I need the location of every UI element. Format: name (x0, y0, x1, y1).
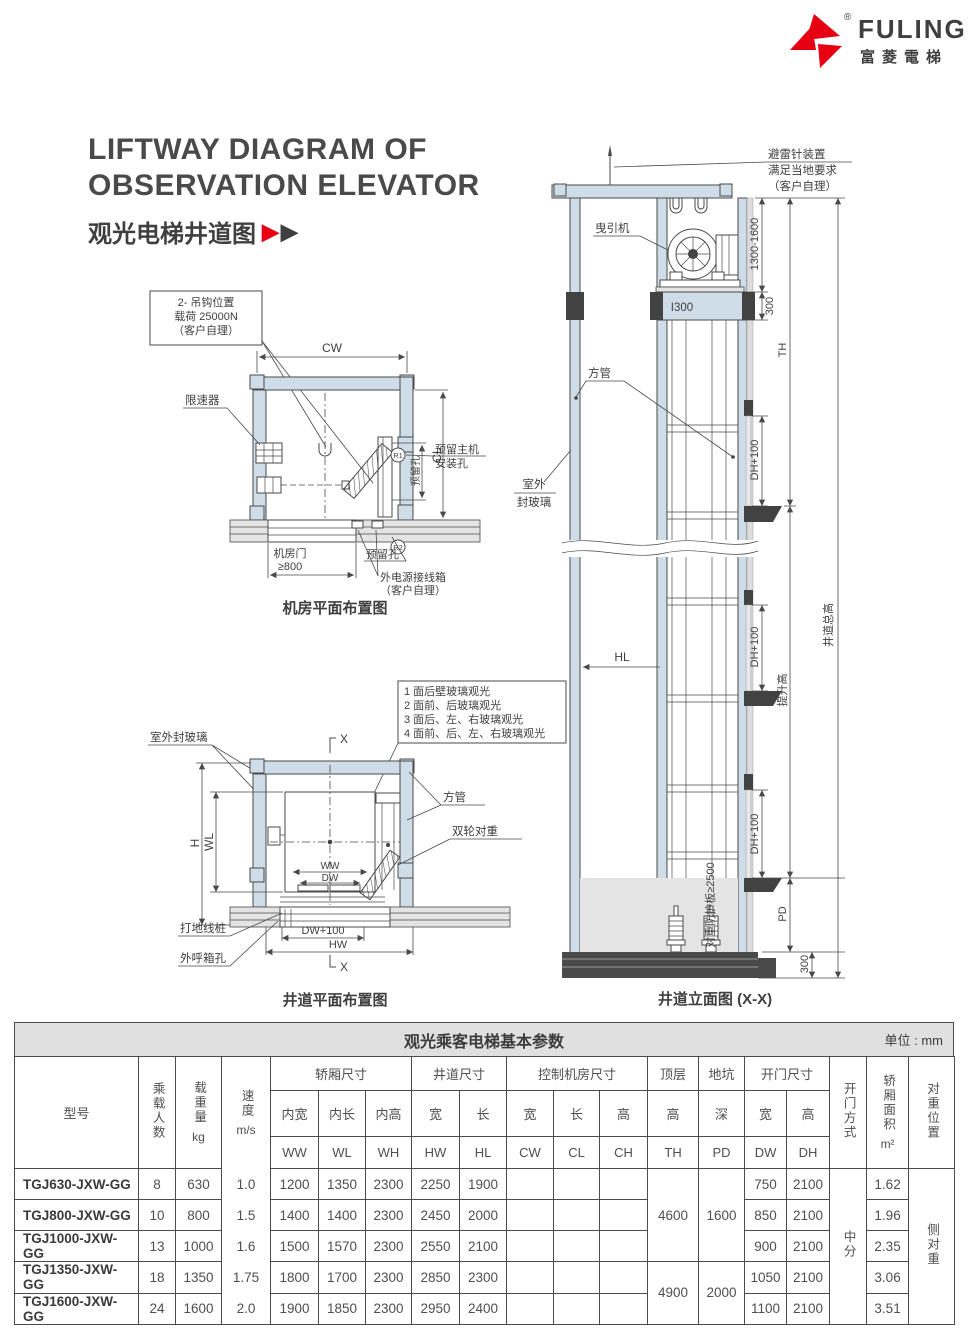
table-title-bar: 观光乘客电梯基本参数 单位 : mm (14, 1022, 954, 1056)
dim-dh-label-2: DH+100 (749, 627, 761, 668)
cell-persons: 13 (139, 1231, 176, 1262)
cell-pd-merged-b: 2000 (699, 1262, 745, 1325)
page-title: LIFTWAY DIAGRAM OF OBSERVATION ELEVATOR … (88, 132, 480, 249)
cell-wl: 1700 (319, 1262, 366, 1294)
cell-wl: 1400 (319, 1200, 366, 1231)
cell-dw: 1050 (745, 1262, 787, 1294)
table-row: TGJ1350-JXW-GG 18 1350 1800 1700 2300 28… (15, 1262, 955, 1294)
note-line2: 2 面前、后玻璃观光 (404, 698, 501, 712)
col-header-persons: 乘载人数 (139, 1057, 176, 1169)
lightning-label3: （客户自理） (768, 179, 837, 193)
elevation-caption: 井道立面图 (X-X) (658, 990, 772, 1008)
double-cw-label: 双轮对重 (452, 824, 498, 838)
cell-dw: 750 (745, 1169, 787, 1200)
col-header-load: 载重量kg (176, 1057, 222, 1169)
cell-dh: 2100 (787, 1231, 830, 1262)
cell-dh: 2100 (787, 1262, 830, 1294)
cell-empty (507, 1200, 554, 1231)
section-x-top: X (340, 732, 348, 746)
cell-hl: 2300 (460, 1262, 507, 1294)
group-header-car: 轿厢尺寸 (271, 1057, 412, 1091)
cell-hw: 2550 (412, 1231, 460, 1262)
sub-header-th: 高 (648, 1091, 699, 1137)
cell-model: TGJ800-JXW-GG (15, 1200, 139, 1231)
governor-device (256, 443, 282, 463)
cell-load: 1000 (176, 1231, 222, 1262)
cell-dh: 2100 (787, 1200, 830, 1231)
table-title: 观光乘客电梯基本参数 (404, 1028, 564, 1052)
dark-arrow-icon: ▶ (281, 219, 298, 245)
total-height-label: 井道总高 (821, 603, 835, 647)
shaft-roof (552, 145, 732, 198)
governor-label: 限速器 (185, 394, 220, 407)
cell-persons: 18 (139, 1262, 176, 1294)
code-hw: HW (412, 1137, 460, 1169)
sub-header-cw: 宽 (507, 1091, 554, 1137)
cell-th-merged-b: 4900 (648, 1262, 699, 1325)
col-header-door-mode: 开门方式 (830, 1057, 867, 1169)
cell-door-mode-text: 中分 (842, 1230, 855, 1259)
cell-empty (507, 1262, 554, 1294)
cell-empty (600, 1293, 648, 1324)
cell-load: 1600 (176, 1293, 222, 1324)
cell-dh: 2100 (787, 1293, 830, 1324)
brand-logo: ® FULING 富菱電梯 (788, 12, 960, 72)
cell-wl: 1570 (319, 1231, 366, 1262)
brand-name-cn: 富菱電梯 (860, 46, 948, 67)
dim-hw-label: HW (329, 939, 348, 951)
col-header-speed: 速度m/s (222, 1057, 271, 1169)
ground-peg-label: 打地线桩 (180, 921, 226, 935)
cell-speed-5: 2.0 (222, 1293, 270, 1324)
dim-300-label: 300 (764, 297, 776, 315)
sub-header-wh: 内高 (366, 1091, 412, 1137)
spec-grid: 型号 乘载人数 载重量kg 速度m/s 轿厢尺寸 井道尺寸 控制机房尺寸 顶层 … (14, 1056, 955, 1325)
cell-hw: 2450 (412, 1200, 460, 1231)
col-header-area-unit: m² (867, 1137, 908, 1151)
group-header-top: 顶层 (648, 1057, 699, 1091)
callbox-label: 外呼箱孔 (180, 951, 226, 965)
cell-wl: 1350 (319, 1169, 366, 1200)
beam-label: I300 (671, 302, 693, 314)
dim-hl-label: HL (614, 650, 630, 664)
lightning-label2: 满足当地要求 (768, 163, 837, 177)
cell-hw: 2950 (412, 1293, 460, 1324)
sub-header-ww: 内宽 (271, 1091, 319, 1137)
code-wl: WL (319, 1137, 366, 1169)
code-th: TH (648, 1137, 699, 1169)
outdoor-glass-label-elev2: 封玻璃 (517, 495, 552, 509)
cell-cw-pos-text: 侧对重 (925, 1223, 938, 1267)
outdoor-glass-label: 室外封玻璃 (150, 730, 208, 744)
rod-assembly (257, 477, 349, 493)
code-wh: WH (366, 1137, 412, 1169)
title-en-line2: OBSERVATION ELEVATOR (88, 168, 480, 204)
square-tube-label: 方管 (443, 790, 466, 804)
col-header-load-unit: kg (176, 1130, 221, 1144)
col-header-persons-text: 乘载人数 (150, 1082, 163, 1140)
cell-wh: 2300 (366, 1169, 412, 1200)
group-header-shaft: 井道尺寸 (412, 1057, 507, 1091)
cell-area: 1.62 (867, 1169, 909, 1200)
red-arrow-icon: ▶ (262, 219, 279, 245)
cell-speed-4: 1.75 (222, 1262, 270, 1293)
dim-dw-label: DW (322, 873, 339, 884)
cell-wh: 2300 (366, 1200, 412, 1231)
cell-dw: 850 (745, 1200, 787, 1231)
table-row: TGJ1000-JXW-GG 13 1000 1500 1570 2300 25… (15, 1231, 955, 1262)
cell-model: TGJ1000-JXW-GG (15, 1231, 139, 1262)
lift-height-label: 提升高 (775, 674, 789, 707)
cell-model: TGJ630-JXW-GG (15, 1169, 139, 1200)
sub-header-ch: 高 (600, 1091, 648, 1137)
sub-header-dh: 高 (787, 1091, 830, 1137)
cell-speed-1: 1.0 (222, 1169, 270, 1200)
cell-pd-merged-a: 1600 (699, 1169, 745, 1262)
sub-header-hl: 长 (460, 1091, 507, 1137)
square-tube-label-elev: 方管 (588, 366, 611, 380)
section-x-bottom: X (340, 960, 348, 974)
col-header-cwpos-text: 对重位置 (925, 1082, 938, 1140)
code-cl: CL (554, 1137, 600, 1169)
cell-load: 630 (176, 1169, 222, 1200)
cell-empty (554, 1169, 600, 1200)
cell-hl: 2100 (460, 1231, 507, 1262)
col-header-door-mode-text: 开门方式 (842, 1082, 855, 1140)
dim-ww-label: WW (321, 861, 340, 872)
brand-name: FULING (858, 14, 967, 45)
rail-brackets (667, 425, 738, 859)
cell-speed-2: 1.5 (222, 1200, 270, 1231)
cell-empty (507, 1231, 554, 1262)
group-header-pit: 地坑 (699, 1057, 745, 1091)
dim-dw100-label: DW+100 (301, 925, 344, 937)
cell-ww: 1500 (271, 1231, 319, 1262)
dim-dh-label-1: DH+100 (749, 440, 761, 481)
col-header-load-text: 载重量 (192, 1081, 205, 1125)
cell-area: 2.35 (867, 1231, 909, 1262)
cell-speed-3: 1.6 (222, 1231, 270, 1262)
dim-h-label: H (188, 839, 202, 848)
power-box-label1: 外电源接线箱 (380, 570, 446, 584)
door-label2: ≥800 (278, 561, 302, 573)
fuling-mark-icon (788, 14, 850, 70)
sub-header-dw: 宽 (745, 1091, 787, 1137)
elevation-svg: 避雷针装置 满足当地要求 （客户自理） 曳引机 (500, 140, 960, 1020)
power-box-label2: （客户自理） (380, 583, 446, 597)
reserved-hole-v-label: 预留孔 (409, 456, 422, 486)
traction-machine (656, 229, 744, 292)
cell-ww: 1400 (271, 1200, 319, 1231)
cell-persons: 8 (139, 1169, 176, 1200)
cell-speed-merged: 1.0 1.5 1.6 1.75 2.0 (222, 1169, 271, 1325)
table-row: TGJ1600-JXW-GG 24 1600 1900 1850 2300 29… (15, 1293, 955, 1324)
r1-marker: R1 (393, 451, 403, 460)
code-cw: CW (507, 1137, 554, 1169)
hook-callout: 2- 吊钩位置 载荷 25000N （客户自理） (150, 291, 262, 345)
cw-guard-label: 对重防护板≥2500 (703, 862, 717, 948)
group-header-ctrl: 控制机房尺寸 (507, 1057, 648, 1091)
lightning-label1: 避雷针装置 (768, 147, 826, 161)
outdoor-glass-label-elev1: 室外 (523, 477, 546, 491)
cell-th-merged-a: 4600 (648, 1169, 699, 1262)
cell-wh: 2300 (366, 1293, 412, 1324)
cell-empty (600, 1169, 648, 1200)
code-dw: DW (745, 1137, 787, 1169)
table-unit: 单位 : mm (885, 1030, 944, 1049)
col-header-speed-text: 速度 (239, 1089, 252, 1118)
col-header-area-text: 轿厢面积 (881, 1074, 894, 1132)
group-header-door: 开门尺寸 (745, 1057, 830, 1091)
liftway-plan-caption: 井道平面布置图 (282, 991, 387, 1009)
hook-callout-line1: 2- 吊钩位置 (178, 295, 235, 309)
cell-ww: 1800 (271, 1262, 319, 1294)
code-pd: PD (699, 1137, 745, 1169)
cell-persons: 10 (139, 1200, 176, 1231)
code-hl: HL (460, 1137, 507, 1169)
dim-1300-label: 1300-1600 (749, 218, 761, 271)
code-dh: DH (787, 1137, 830, 1169)
machine-beam (566, 292, 755, 320)
cell-door-mode: 中分 (830, 1169, 867, 1325)
col-header-area: 轿厢面积m² (867, 1057, 909, 1169)
hoist-hooks (670, 198, 707, 213)
cell-wh: 2300 (366, 1262, 412, 1294)
machine-room-plan-svg: 2- 吊钩位置 载荷 25000N （客户自理） CW 限速器 (130, 285, 490, 625)
machine-room-caption: 机房平面布置图 (282, 599, 387, 617)
title-cn-text: 观光电梯井道图 (88, 214, 256, 249)
door-label1: 机房门 (274, 546, 307, 560)
cell-cw-pos: 侧对重 (909, 1169, 955, 1325)
cell-persons: 24 (139, 1293, 176, 1324)
cell-empty (554, 1200, 600, 1231)
cell-ww: 1200 (271, 1169, 319, 1200)
cell-load: 800 (176, 1200, 222, 1231)
sub-header-cl: 长 (554, 1091, 600, 1137)
cell-area: 1.96 (867, 1200, 909, 1231)
note-line1: 1 面后壁玻璃观光 (404, 684, 490, 698)
catalog-page: ® FULING 富菱電梯 LIFTWAY DIAGRAM OF OBSERVA… (0, 0, 968, 1337)
cell-empty (554, 1262, 600, 1294)
cell-empty (600, 1200, 648, 1231)
sub-header-wl: 内长 (319, 1091, 366, 1137)
cell-ww: 1900 (271, 1293, 319, 1324)
col-header-model: 型号 (15, 1057, 139, 1169)
machine-room-floor: R2 (230, 520, 480, 554)
registered-mark: ® (844, 12, 851, 23)
cell-empty (507, 1293, 554, 1324)
cell-empty (600, 1262, 648, 1294)
col-header-cwpos: 对重位置 (909, 1057, 955, 1169)
code-ww: WW (271, 1137, 319, 1169)
cell-hl: 2400 (460, 1293, 507, 1324)
cell-empty (600, 1231, 648, 1262)
dim-th-label: TH (777, 343, 789, 358)
dim-pd-label: PD (777, 906, 789, 921)
cell-dw: 900 (745, 1231, 787, 1262)
traction-machine-label: 曳引机 (595, 221, 630, 235)
cell-hl: 2000 (460, 1200, 507, 1231)
cell-hl: 1900 (460, 1169, 507, 1200)
cell-area: 3.51 (867, 1293, 909, 1324)
cell-dw: 1100 (745, 1293, 787, 1324)
cell-model: TGJ1350-JXW-GG (15, 1262, 139, 1294)
cell-area: 3.06 (867, 1262, 909, 1294)
code-ch: CH (600, 1137, 648, 1169)
spec-table: 观光乘客电梯基本参数 单位 : mm 型号 乘载人数 载重量kg 速度m/s 轿… (14, 1022, 954, 1325)
col-header-speed-unit: m/s (222, 1123, 270, 1137)
dim-cl-label: CL (430, 447, 444, 463)
dim-300b-label: 300 (799, 955, 811, 973)
cell-hw: 2850 (412, 1262, 460, 1294)
hook-callout-line2: 载荷 25000N (174, 310, 238, 323)
hook-callout-line3: （客户自理） (173, 323, 239, 337)
cell-hw: 2250 (412, 1169, 460, 1200)
cell-load: 1350 (176, 1262, 222, 1294)
cell-empty (554, 1231, 600, 1262)
sub-header-pd: 深 (699, 1091, 745, 1137)
sub-header-hw: 宽 (412, 1091, 460, 1137)
table-row: TGJ630-JXW-GG 8 630 1.0 1.5 1.6 1.75 2.0… (15, 1169, 955, 1200)
dim-wl-label: WL (202, 833, 216, 851)
cell-empty (507, 1169, 554, 1200)
title-cn: 观光电梯井道图 ▶ ▶ (88, 214, 480, 249)
title-en-line1: LIFTWAY DIAGRAM OF (88, 132, 480, 168)
cell-model: TGJ1600-JXW-GG (15, 1293, 139, 1324)
guide-rails (672, 320, 726, 908)
dim-cw-label: CW (322, 341, 343, 355)
cell-wh: 2300 (366, 1231, 412, 1262)
reserved-machine-area: R1 (343, 437, 405, 517)
cell-empty (554, 1293, 600, 1324)
dim-dh-label-3: DH+100 (749, 814, 761, 855)
cell-wl: 1850 (319, 1293, 366, 1324)
break-lines (562, 540, 758, 557)
table-row: TGJ800-JXW-GG 10 800 1400 1400 2300 2450… (15, 1200, 955, 1231)
cell-dh: 2100 (787, 1169, 830, 1200)
